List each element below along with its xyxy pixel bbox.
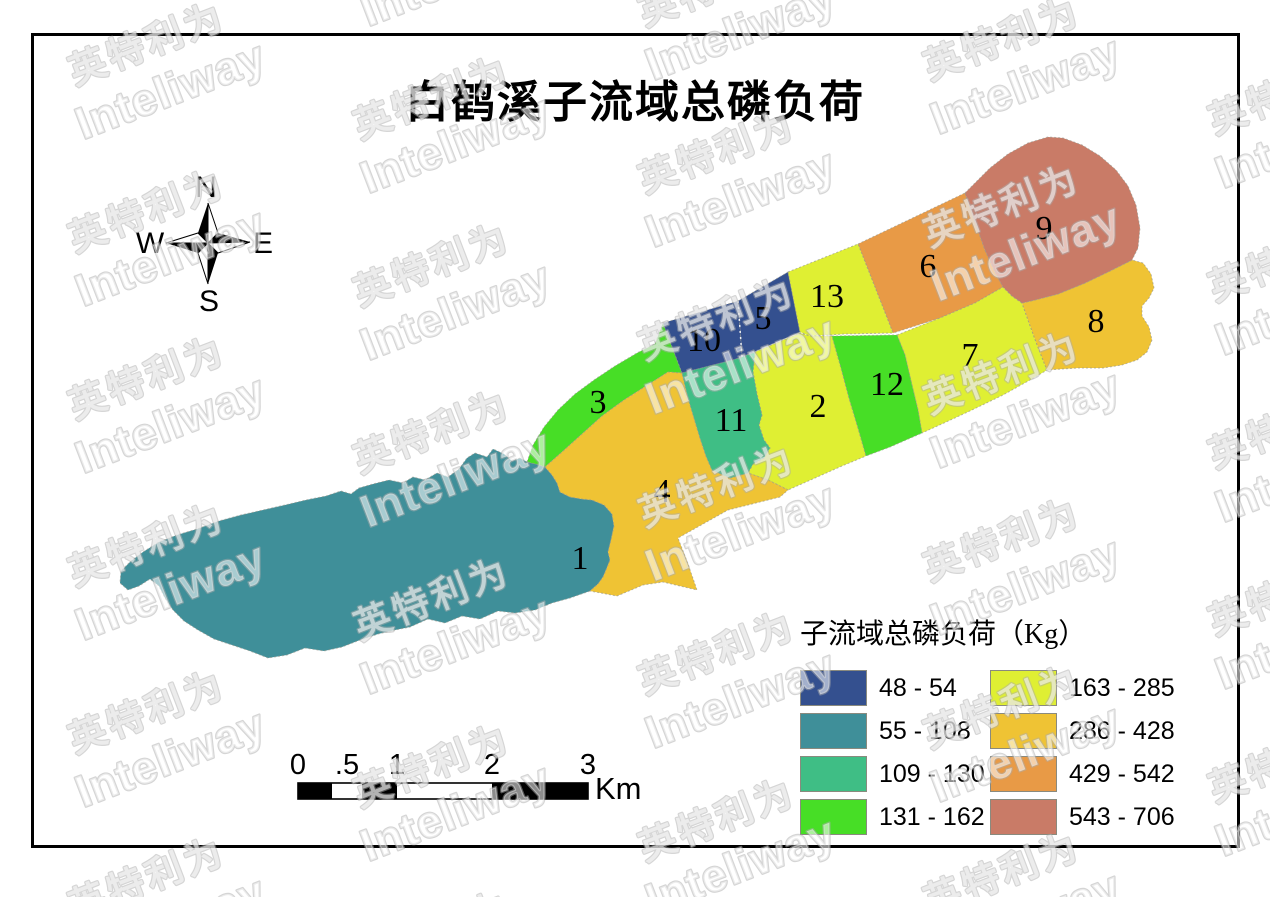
- legend-item: 131 - 162: [800, 799, 985, 835]
- legend-item-label: 286 - 428: [1069, 717, 1175, 746]
- legend-swatch: [800, 756, 867, 792]
- scale-tick-label: .5: [335, 749, 359, 781]
- map-region-label-8: 8: [1088, 303, 1105, 340]
- compass-label-s: S: [199, 285, 219, 318]
- legend-column-left: 48 - 5455 - 108109 - 130131 - 162: [800, 670, 985, 835]
- legend-item-label: 543 - 706: [1069, 803, 1175, 832]
- legend-swatch: [800, 713, 867, 749]
- legend-column-right: 163 - 285286 - 428429 - 542543 - 706: [990, 670, 1175, 835]
- scale-tick-label: 0: [290, 749, 306, 781]
- legend-item-label: 429 - 542: [1069, 760, 1175, 789]
- compass-rose: N E S W: [136, 171, 273, 318]
- legend-swatch: [990, 799, 1057, 835]
- legend-item: 55 - 108: [800, 713, 985, 749]
- legend-item-label: 131 - 162: [879, 803, 985, 832]
- scale-tick-label: 1: [389, 749, 405, 781]
- map-region-label-12: 12: [870, 366, 904, 403]
- scale-bar-segment: [362, 783, 397, 799]
- map-region-label-1: 1: [572, 540, 589, 577]
- legend-item: 48 - 54: [800, 670, 985, 706]
- legend-item: 109 - 130: [800, 756, 985, 792]
- legend-item-label: 109 - 130: [879, 760, 985, 789]
- legend-swatch: [800, 670, 867, 706]
- map-region-label-13: 13: [810, 278, 844, 315]
- scale-bar-segment: [298, 783, 332, 799]
- map-region-label-10: 10: [687, 322, 721, 359]
- map-region-label-9: 9: [1036, 210, 1053, 247]
- scale-tick-label: 3: [580, 749, 596, 781]
- legend-item: 163 - 285: [990, 670, 1175, 706]
- map-region-label-7: 7: [962, 337, 979, 374]
- scale-unit-label: Km: [595, 771, 642, 806]
- compass-label-n: N: [195, 171, 217, 204]
- legend-swatch: [800, 799, 867, 835]
- legend-swatch: [990, 756, 1057, 792]
- map-region-label-5: 5: [755, 300, 772, 337]
- legend-item-label: 48 - 54: [879, 674, 957, 703]
- legend-item: 429 - 542: [990, 756, 1175, 792]
- map-canvas: 白鹤溪子流域总磷负荷 12345678910111213 N E S W: [0, 0, 1270, 897]
- map-region-label-6: 6: [920, 248, 937, 285]
- scale-ticks: 0.5123: [290, 749, 596, 781]
- legend-swatch: [990, 670, 1057, 706]
- map-region-label-4: 4: [654, 473, 671, 510]
- legend-swatch: [990, 713, 1057, 749]
- legend: 子流域总磷负荷（Kg） 48 - 5455 - 108109 - 130131 …: [800, 612, 1086, 670]
- map-region-label-11: 11: [715, 402, 748, 439]
- map-region-label-3: 3: [590, 384, 607, 421]
- regions-layer: 12345678910111213: [120, 137, 1154, 658]
- legend-item-label: 163 - 285: [1069, 674, 1175, 703]
- scale-tick-label: 2: [484, 749, 500, 781]
- compass-label-w: W: [136, 227, 165, 260]
- compass-label-e: E: [253, 227, 273, 260]
- scale-bar-segment: [492, 783, 588, 799]
- scale-bar: 0.5123 Km: [290, 749, 642, 806]
- legend-item: 543 - 706: [990, 799, 1175, 835]
- map-region-label-2: 2: [810, 388, 827, 425]
- legend-item: 286 - 428: [990, 713, 1175, 749]
- map-region-1: [120, 449, 614, 658]
- legend-item-label: 55 - 108: [879, 717, 971, 746]
- legend-title: 子流域总磷负荷（Kg）: [800, 612, 1086, 652]
